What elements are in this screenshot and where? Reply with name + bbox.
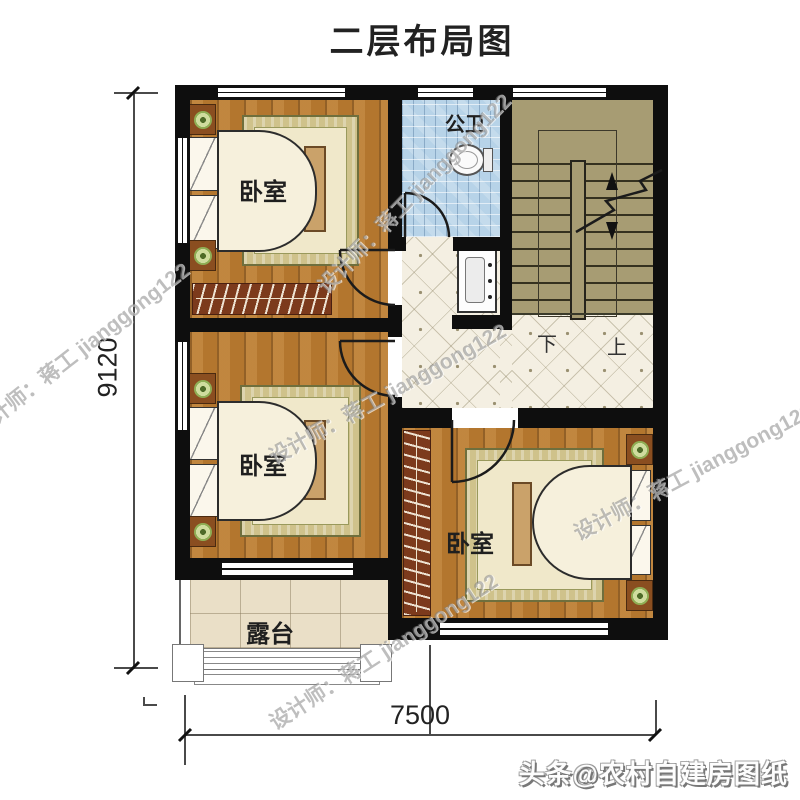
stair-bottom-edge — [512, 313, 653, 315]
page-title: 二层布局图 — [0, 14, 800, 63]
nightstand — [189, 516, 216, 547]
bed-pillows — [189, 137, 219, 249]
wall — [388, 237, 406, 251]
brand-watermark: 头条@农村自建房图纸 — [519, 754, 788, 791]
dimension-line-horizontal — [185, 734, 655, 736]
nightstand — [189, 240, 216, 271]
stair-up-label: 上 — [607, 331, 627, 360]
wall — [402, 408, 452, 428]
plant-icon — [194, 380, 212, 398]
corner-mark — [143, 704, 157, 706]
window — [218, 85, 345, 100]
dimension-value-vertical: 9120 — [93, 338, 124, 398]
washbasin-icon — [457, 247, 497, 313]
window — [418, 85, 473, 100]
railing-post — [360, 644, 392, 682]
window — [440, 620, 608, 638]
nightstand — [189, 373, 216, 404]
pillow — [189, 137, 219, 191]
dimension-value-horizontal: 7500 — [380, 700, 460, 731]
dimension-cap — [114, 667, 158, 669]
railing-post — [172, 644, 204, 682]
plant-icon — [194, 247, 212, 265]
stair-stringer — [570, 160, 586, 320]
window — [175, 138, 190, 243]
window — [513, 85, 606, 100]
terrace-label: 露台 — [230, 614, 310, 649]
wall — [388, 397, 402, 618]
window — [175, 342, 190, 430]
floor-plan-page: 二层布局图 下 上 卧室 卧室 卧室 — [0, 0, 800, 800]
wall — [500, 100, 512, 330]
toilet-icon — [449, 142, 493, 176]
wall — [518, 408, 653, 428]
plant-icon — [631, 587, 649, 605]
bench — [512, 482, 532, 566]
faucet-icon — [488, 263, 492, 267]
terrace-door-window — [222, 560, 353, 578]
wall — [175, 318, 402, 332]
stair-down-label: 下 — [537, 328, 557, 357]
terrace-railing-outer — [194, 674, 380, 685]
wardrobe — [403, 430, 431, 616]
nightstand — [626, 580, 653, 611]
toilet-tank — [483, 148, 493, 172]
pillow — [189, 464, 219, 517]
terrace-side-line — [179, 580, 181, 648]
bed-pillows — [189, 407, 219, 517]
bedroom-mid-left-label: 卧室 — [223, 446, 303, 481]
hall-floor-strip — [500, 330, 512, 408]
plant-icon — [194, 111, 212, 129]
toilet-bowl — [449, 144, 485, 176]
wall — [388, 100, 402, 245]
hall-floor-right — [512, 315, 653, 408]
dimension-extension — [655, 700, 657, 734]
pillow — [189, 407, 219, 460]
plant-icon — [631, 441, 649, 459]
bedroom-bottom-right-label: 卧室 — [430, 524, 510, 559]
dimension-cap — [114, 92, 158, 94]
dimension-extension — [184, 695, 186, 765]
corner-mark — [143, 697, 145, 706]
wall — [653, 85, 668, 640]
bedroom-top-left-label: 卧室 — [223, 172, 303, 207]
washbasin-bowl — [465, 257, 485, 303]
nightstand — [626, 434, 653, 465]
wall — [452, 315, 512, 329]
plant-icon — [194, 523, 212, 541]
bathroom-label: 公卫 — [435, 108, 495, 137]
dimension-line-vertical — [133, 93, 135, 669]
nightstand — [189, 104, 216, 135]
wardrobe — [192, 283, 332, 315]
